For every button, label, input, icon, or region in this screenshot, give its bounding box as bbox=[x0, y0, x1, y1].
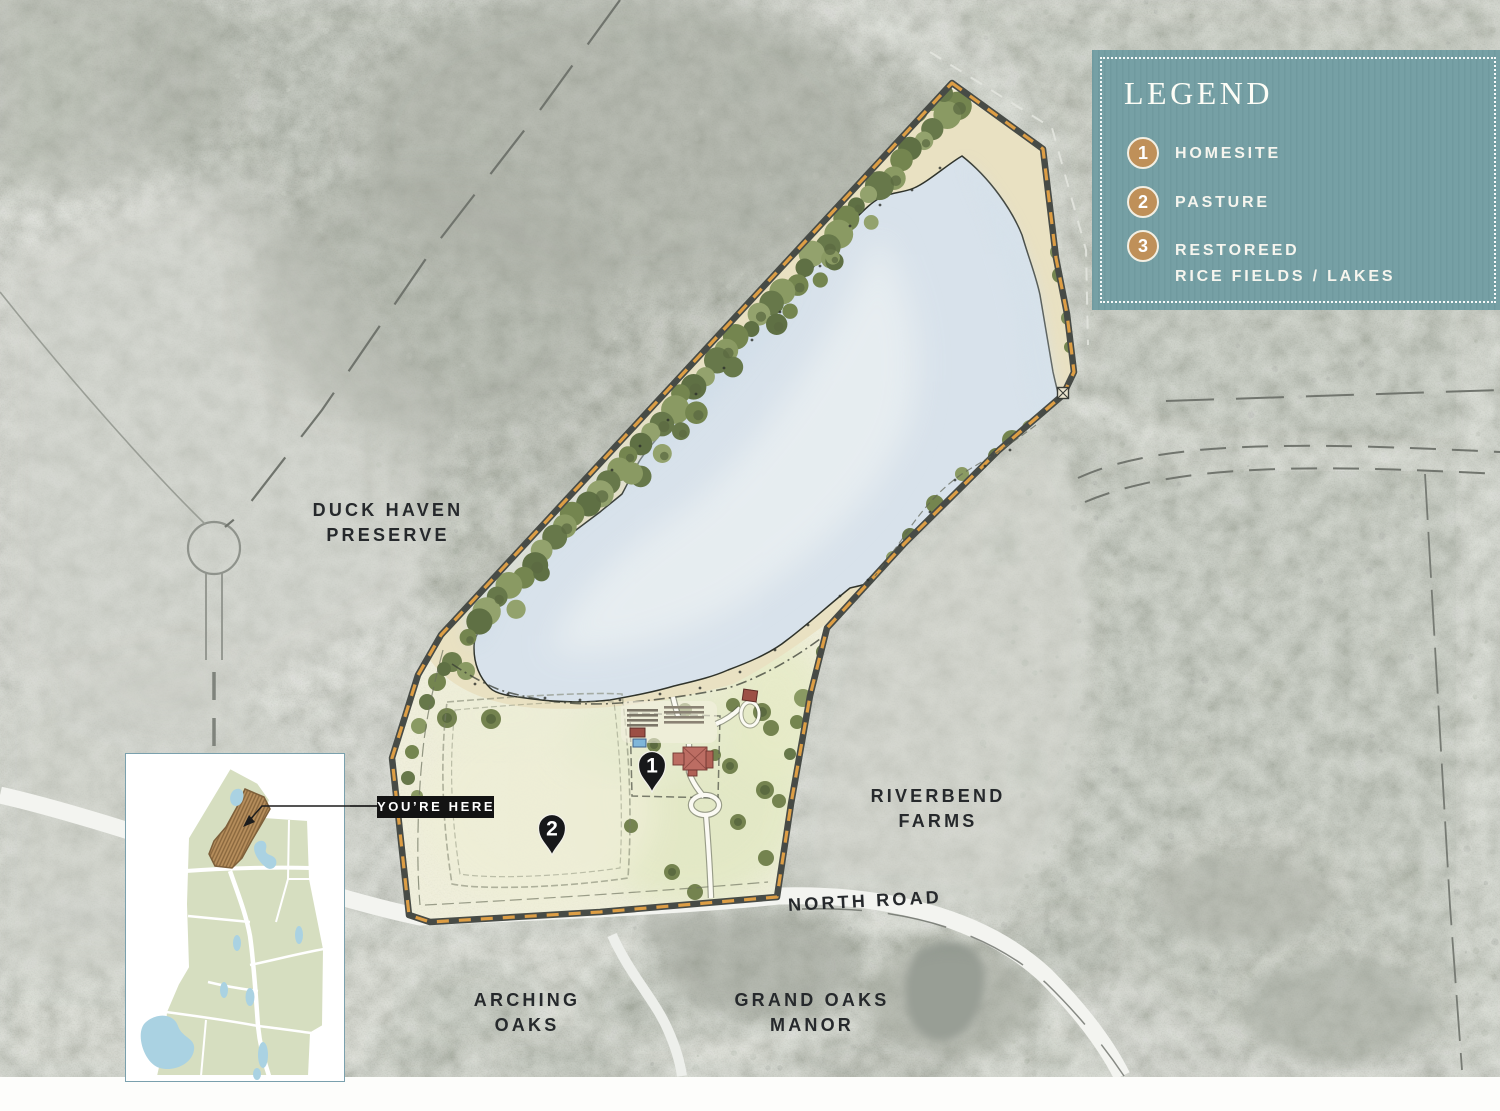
svg-text:2: 2 bbox=[546, 818, 558, 841]
svg-text:1: 1 bbox=[646, 755, 658, 778]
